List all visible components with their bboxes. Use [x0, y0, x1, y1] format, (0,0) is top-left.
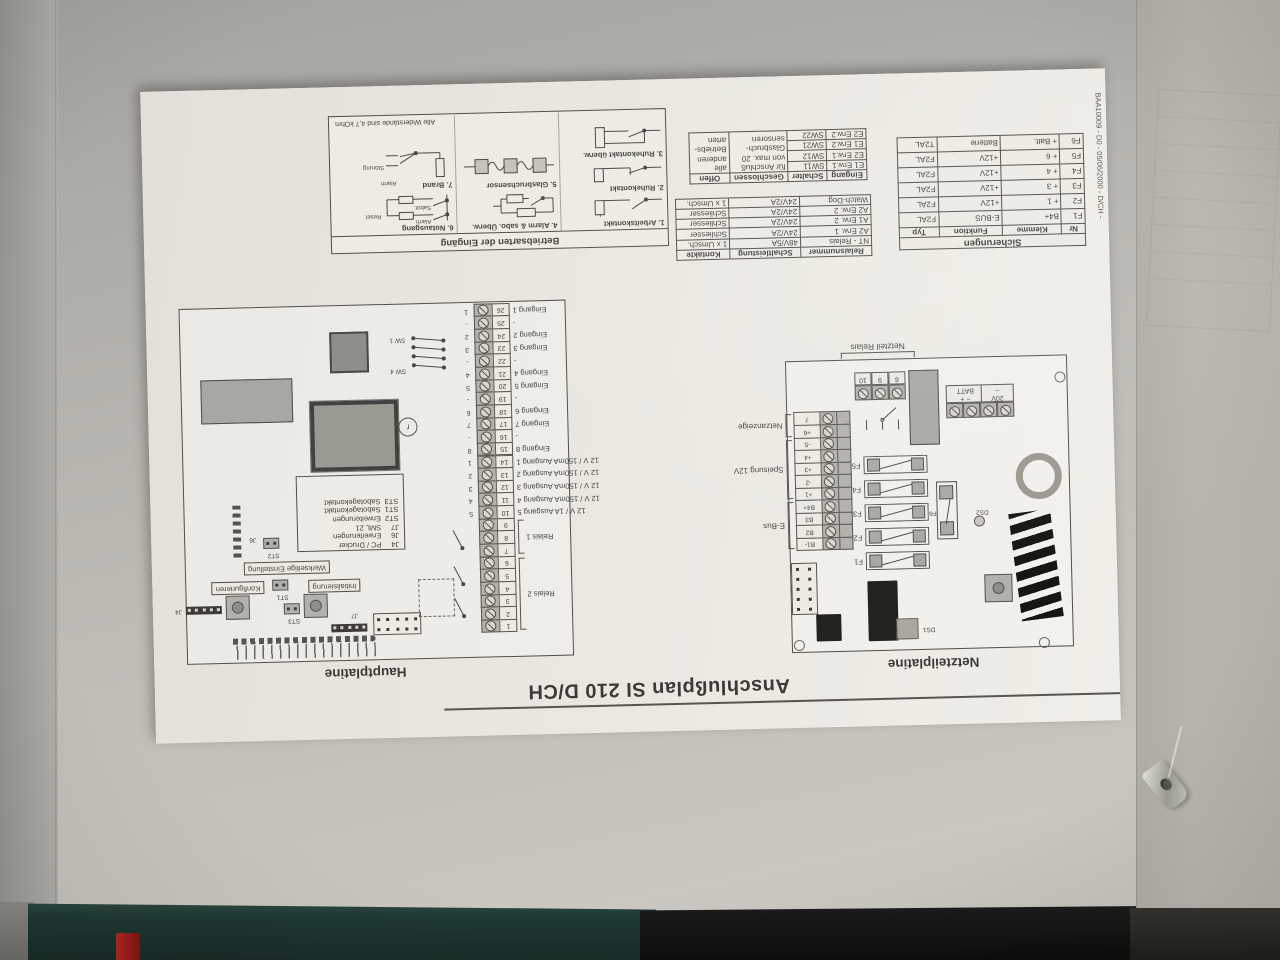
- screw-terminal-icon: [479, 355, 490, 366]
- terminal-outer-number: 2: [459, 332, 474, 340]
- terminal-number: 20: [493, 379, 511, 393]
- plcc-chip: [329, 331, 369, 373]
- terminal-number: 16: [495, 429, 513, 443]
- fuse-label: F5: [852, 461, 864, 470]
- sub-label: Alarm: [416, 217, 432, 224]
- screw-terminal-icon: [892, 387, 903, 398]
- circuit-icon: [567, 159, 664, 185]
- terminal-function-label: Eingang 3: [510, 341, 617, 352]
- screw-terminal-icon: [484, 570, 495, 581]
- screw-terminal-icon: [825, 513, 836, 524]
- terminal-function-label: -: [513, 429, 620, 440]
- document: Anschlußplan SI 210 D/CH BAA10009 - D0 -…: [140, 68, 1121, 743]
- document-code: BAA10009 - D0 - 05/06/2000 - D/CH -: [1093, 92, 1105, 244]
- terminal-function-label: 12 V / 150mA Ausgang 4: [514, 492, 621, 503]
- ic-chip: [867, 581, 898, 642]
- eingang-table: Eingang Schalter Geschlossen Offen E1 Er…: [688, 128, 867, 184]
- screw-terminal-icon: [478, 318, 489, 329]
- terminal-row: +4: [794, 449, 851, 463]
- terminal-function-label: 12 V / 150mA Ausgang 3: [514, 480, 621, 491]
- fuse-row: F2: [853, 527, 929, 547]
- sw-links-icon: [407, 334, 448, 373]
- haupt-caption: Hauptplatine: [324, 664, 406, 682]
- fuse-icon: [864, 479, 928, 499]
- terminal-number: 21: [493, 366, 511, 380]
- terminal-number: 22: [493, 353, 511, 367]
- fuse-label: F2: [853, 533, 865, 542]
- screw-terminal-icon: [478, 330, 489, 341]
- terminal-outer-number: -: [462, 433, 477, 441]
- screw-terminal-icon: [485, 608, 496, 619]
- fuse-row: F5: [852, 455, 928, 475]
- terminal-label: +1: [795, 487, 821, 501]
- terminal-function-label: -: [512, 391, 619, 402]
- screw-terminal-icon: [485, 621, 496, 632]
- relais1-group: Relais 1: [518, 518, 554, 555]
- terminal-label: +4: [794, 450, 820, 464]
- terminal-label: -5: [794, 437, 820, 451]
- wall-shade: [0, 0, 58, 960]
- screw-terminal-icon: [479, 381, 490, 392]
- schematic-sheet: Anschlußplan SI 210 D/CH BAA10009 - D0 -…: [140, 68, 1121, 743]
- terminal-number: 11: [496, 492, 514, 506]
- terminal-number: 10: [496, 505, 514, 519]
- fuse-f6-label: F6: [929, 509, 937, 517]
- fuse-icon: [863, 455, 927, 475]
- circuit-icon: [342, 148, 453, 183]
- screw-terminal-icon: [484, 583, 495, 594]
- ds1-label: DS1: [923, 625, 936, 633]
- netzteil-relais-caption: Netzteil Relais: [837, 340, 919, 359]
- terminal-group: +6 7 Netzanzeige: [732, 412, 850, 440]
- st3-jumper: [284, 603, 300, 614]
- terminal-number: 13: [495, 467, 513, 481]
- terminal-label: -2: [795, 475, 821, 489]
- legend-border: [296, 474, 406, 553]
- terminal-number: 24: [492, 328, 510, 342]
- group-brace: [518, 520, 525, 554]
- screw-terminal-icon: [825, 501, 836, 512]
- terminal-outer-number: 5: [463, 509, 478, 517]
- mode-item: 3. Ruhekontakt überw.: [562, 122, 663, 159]
- ic-chip: [816, 614, 842, 642]
- terminal-function-label: 12 V / 1A Ausgang 5: [514, 505, 621, 516]
- offen-cell: alle anderen Betriebs- arten: [689, 132, 730, 174]
- group-name: Netzanzeige: [738, 421, 786, 431]
- connector-2x5: [373, 612, 422, 635]
- minus-label: −: [966, 395, 970, 402]
- group-name: E-Bus: [763, 522, 788, 532]
- terminal-number: 10: [854, 372, 871, 385]
- terminal-group: +1 -2: [733, 437, 852, 503]
- relay-body: [908, 369, 940, 445]
- mode-item: 6. Notausgang Alarm Sabot.: [338, 191, 454, 234]
- terminal-number: 14: [495, 454, 513, 468]
- terminal-number: 7: [497, 543, 515, 557]
- potentiometer-icon: [303, 593, 328, 618]
- batt-block: 20V ~ − + BATT: [946, 384, 1015, 419]
- terminal-outer-number: 1: [462, 458, 477, 466]
- j6-pin-strip: [232, 506, 241, 558]
- netzteil-caption: Netzteilplatine: [888, 654, 980, 672]
- screw-terminal-icon: [482, 494, 493, 505]
- screw-terminal-icon: [482, 482, 493, 493]
- fuse-label: F1: [854, 557, 866, 566]
- terminal-number: 8: [497, 530, 515, 544]
- screw-terminal-icon: [825, 526, 836, 537]
- terminal-function-label: Eingang 6: [512, 404, 619, 415]
- terminal-number: 1: [499, 619, 517, 633]
- screw-terminal-icon: [823, 426, 834, 437]
- terminal-number: 25: [492, 315, 510, 329]
- potentiometer-icon: [984, 574, 1013, 603]
- fuse-row: F4: [852, 479, 928, 499]
- screw-terminal-icon: [823, 413, 834, 424]
- terminal-outer-number: 3: [459, 344, 474, 352]
- machine-dark-section: [640, 905, 1136, 960]
- st1-jumper: [272, 579, 288, 590]
- j4-connector: [186, 606, 222, 615]
- screw-terminal-icon: [824, 463, 835, 474]
- terminal-outer-number: 1: [459, 306, 474, 314]
- haupt-terminal-strip: 1 2 3: [452, 301, 624, 634]
- netzteil-relais-block: 8910: [854, 371, 906, 430]
- terminal-label: B1-: [796, 537, 822, 551]
- screw-terminal-icon: [826, 538, 837, 549]
- terminal-function-label: Eingang 4: [511, 366, 618, 377]
- j7-connector: [331, 623, 367, 632]
- plus-label: +: [960, 395, 964, 402]
- terminal-outer-number: 6: [461, 408, 476, 416]
- sub-label: Reset: [366, 212, 382, 219]
- terminal-function-label: Eingang 2: [510, 328, 617, 339]
- terminal-number: 3: [499, 593, 517, 607]
- terminal-number: 5: [498, 568, 516, 582]
- sw4-label: SW 4: [390, 367, 406, 375]
- terminal-group: B1- B2: [735, 499, 854, 552]
- screw-terminal-icon: [949, 406, 960, 417]
- relais2-group: Relais 2: [519, 556, 556, 631]
- terminal-function-label: Eingang 1: [510, 303, 617, 314]
- fuse-label: F3: [853, 509, 865, 518]
- screw-terminal-icon: [825, 488, 836, 499]
- screw-terminal-icon: [1000, 405, 1011, 416]
- initialisierung-box: Initialisierung: [308, 579, 360, 593]
- ghost-imprint: [1146, 89, 1280, 332]
- screw-terminal-icon: [481, 444, 492, 455]
- netzteil-terminal-strip: B1- B2: [732, 412, 853, 553]
- st1-label: ST1: [277, 593, 289, 601]
- group-brace: [786, 440, 793, 500]
- screw-terminal-icon: [875, 388, 886, 399]
- terminal-label: B3: [796, 512, 822, 526]
- screw-terminal-icon: [485, 596, 496, 607]
- fuse-f6: F6: [936, 481, 958, 539]
- terminal-number: 15: [495, 442, 513, 456]
- screw-terminal-icon: [478, 343, 489, 354]
- terminal-outer-number: 8: [462, 445, 477, 453]
- fuse-row: F1: [854, 551, 930, 571]
- terminal-outer-number: 2: [463, 471, 478, 479]
- terminal-outer-number: 5: [460, 382, 475, 390]
- door-crease: [55, 0, 58, 960]
- terminal-function-label: 12 V / 150mA Ausgang 1: [513, 454, 620, 465]
- screw-terminal-icon: [966, 406, 977, 417]
- betriebsarten-box: Betriebsarten der Eingäng 1. Arbeitskont…: [328, 108, 669, 254]
- screw-terminal-icon: [824, 476, 835, 487]
- terminal-function-label: Eingang 8: [513, 442, 620, 453]
- fuse-icon: [865, 527, 929, 547]
- screw-terminal-icon: [481, 431, 492, 442]
- circuit-icon: [568, 193, 665, 219]
- qfp-ic-chip: [310, 400, 400, 472]
- terminal-row: -5: [794, 437, 851, 451]
- terminal-number: 19: [494, 391, 512, 405]
- sub-label: Alarm: [381, 179, 397, 186]
- screw-terminal-icon: [482, 469, 493, 480]
- terminal-outer-number: 7: [461, 420, 476, 428]
- 20v-label: 20V: [982, 393, 1013, 402]
- mode-item: 2. Ruhekontakt: [563, 159, 664, 194]
- screw-terminal-icon: [480, 406, 491, 417]
- terminal-row: +3: [794, 462, 851, 476]
- terminal-label: +6: [794, 424, 820, 438]
- batt-label: BATT: [950, 385, 981, 394]
- mode-item: 5. Glasbruchsensor: [459, 150, 557, 191]
- screw-terminal-icon: [484, 558, 495, 569]
- terminal-row: +1: [795, 487, 852, 501]
- terminal-row: B3: [796, 512, 853, 526]
- screw-terminal-icon: [479, 368, 490, 379]
- group-brace: [787, 502, 794, 549]
- terminal-outer-number: 3: [463, 483, 478, 491]
- mode-item: 1. Arbeitskontakt: [564, 193, 665, 228]
- terminal-number: 9: [497, 518, 515, 532]
- circuit-icon: [460, 150, 557, 182]
- machine-right: [1130, 908, 1280, 960]
- machinery-strip: [0, 898, 1280, 960]
- circuit-icon: [566, 122, 663, 150]
- konfigurieren-box: Konfigurieren: [212, 581, 265, 595]
- screw-terminal-icon: [858, 388, 869, 399]
- ac-tilde: ~: [982, 385, 1013, 394]
- potentiometer-icon: [226, 595, 251, 620]
- terminal-number: 12: [496, 480, 514, 494]
- screw-terminal-icon: [824, 451, 835, 462]
- screw-terminal-icon: [480, 419, 491, 430]
- group-brace: [519, 558, 527, 630]
- geschlossen-cell: für Anschluß von max. 20 Glasbruch- sens…: [728, 131, 788, 173]
- terminal-label: +3: [794, 462, 820, 476]
- display-module: [200, 378, 293, 424]
- screw-terminal-icon: [481, 457, 492, 468]
- terminal-row: -2: [795, 474, 852, 488]
- mode-item: 4. Alarm & sabo. Überw.: [460, 190, 558, 231]
- circuit-icon: [343, 191, 454, 226]
- ds2-label: DS2: [976, 508, 989, 516]
- terminal-function-label: -: [510, 315, 617, 326]
- screw-terminal-icon: [983, 405, 994, 416]
- terminal-row: 7: [793, 412, 850, 426]
- terminal-outer-number: 4: [463, 496, 478, 504]
- group-brace: [785, 415, 792, 437]
- fuse-row: F3: [853, 503, 929, 523]
- terminal-function-label: Eingang 7: [512, 416, 619, 427]
- ds1-pad: [896, 618, 919, 640]
- terminal-row: B2: [796, 525, 853, 539]
- terminal-number: 17: [494, 417, 512, 431]
- terminal-number: 2: [499, 606, 517, 620]
- sub-label: Sabot.: [414, 203, 432, 210]
- terminal-outer-number: -: [461, 395, 476, 403]
- relay-contact-icon: [858, 401, 907, 430]
- terminal-number: 4: [498, 581, 516, 595]
- screw-terminal-icon: [477, 305, 488, 316]
- st3-label: ST3: [288, 617, 300, 625]
- fuse-label: F4: [852, 485, 864, 494]
- terminal-outer-number: -: [459, 319, 474, 327]
- pin-header-2x5: [791, 562, 818, 615]
- door-edge-crease: [1136, 0, 1139, 960]
- terminal-function-label: Eingang 5: [511, 378, 618, 389]
- sub-label: Störung: [363, 163, 384, 170]
- dashed-option-box: [418, 578, 455, 617]
- terminal-number: 26: [491, 303, 509, 317]
- terminal-function-label: -: [511, 353, 618, 364]
- group-name: Speisung 12V: [734, 465, 787, 475]
- red-component: [116, 933, 140, 960]
- terminal-function-label: 12 V / 150mA Ausgang 2: [514, 467, 621, 478]
- screw-terminal-icon: [483, 532, 494, 543]
- screw-terminal-icon: [823, 438, 834, 449]
- st2-jumper: [263, 538, 279, 549]
- terminal-number: 23: [492, 341, 510, 355]
- sw1-label: SW 1: [389, 336, 405, 344]
- st2-label: ST2: [268, 551, 280, 559]
- terminal-number: 8: [888, 371, 905, 384]
- fuse-column: F1 F2: [851, 449, 930, 571]
- terminal-outer-number: 4: [460, 370, 475, 378]
- fuse-icon: [864, 503, 928, 523]
- terminal-label: B2: [796, 525, 822, 539]
- terminal-row: B4+: [795, 499, 852, 513]
- page-title: Anschlußplan SI 210 D/CH: [450, 673, 790, 704]
- terminal-outer-number: -: [460, 357, 475, 365]
- screw-terminal-icon: [483, 545, 494, 556]
- screw-terminal-icon: [483, 520, 494, 531]
- terminal-row: +6: [794, 424, 851, 438]
- terminal-number: 9: [871, 372, 888, 385]
- photo-of-cabinet-door: Anschlußplan SI 210 D/CH BAA10009 - D0 -…: [0, 0, 1280, 960]
- j4-label: J4: [175, 608, 182, 616]
- terminal-number: 18: [494, 404, 512, 418]
- sicherungen-table: Sicherungen Nr Klemme Funktion Typ F1 B4…: [897, 133, 1087, 251]
- screw-terminal-icon: [480, 393, 491, 404]
- circuit-icon: [461, 190, 558, 222]
- terminal-label: 7: [793, 412, 819, 426]
- j6-label: J6: [249, 536, 256, 544]
- terminal-number: 6: [498, 556, 516, 570]
- j7-label: J7: [351, 611, 358, 619]
- fuse-icon: [866, 551, 930, 571]
- terminal-label: B4+: [795, 500, 821, 514]
- werkseitige-box: Werkseitige Einstellung: [244, 561, 330, 576]
- screw-terminal-icon: [482, 507, 493, 518]
- relais-table: Relaisnummer Schaltleistung Kontakte NT …: [675, 194, 872, 261]
- mode-item: 7. Brand Alarm Störung: [337, 148, 453, 191]
- terminal-row: B1-: [796, 537, 853, 551]
